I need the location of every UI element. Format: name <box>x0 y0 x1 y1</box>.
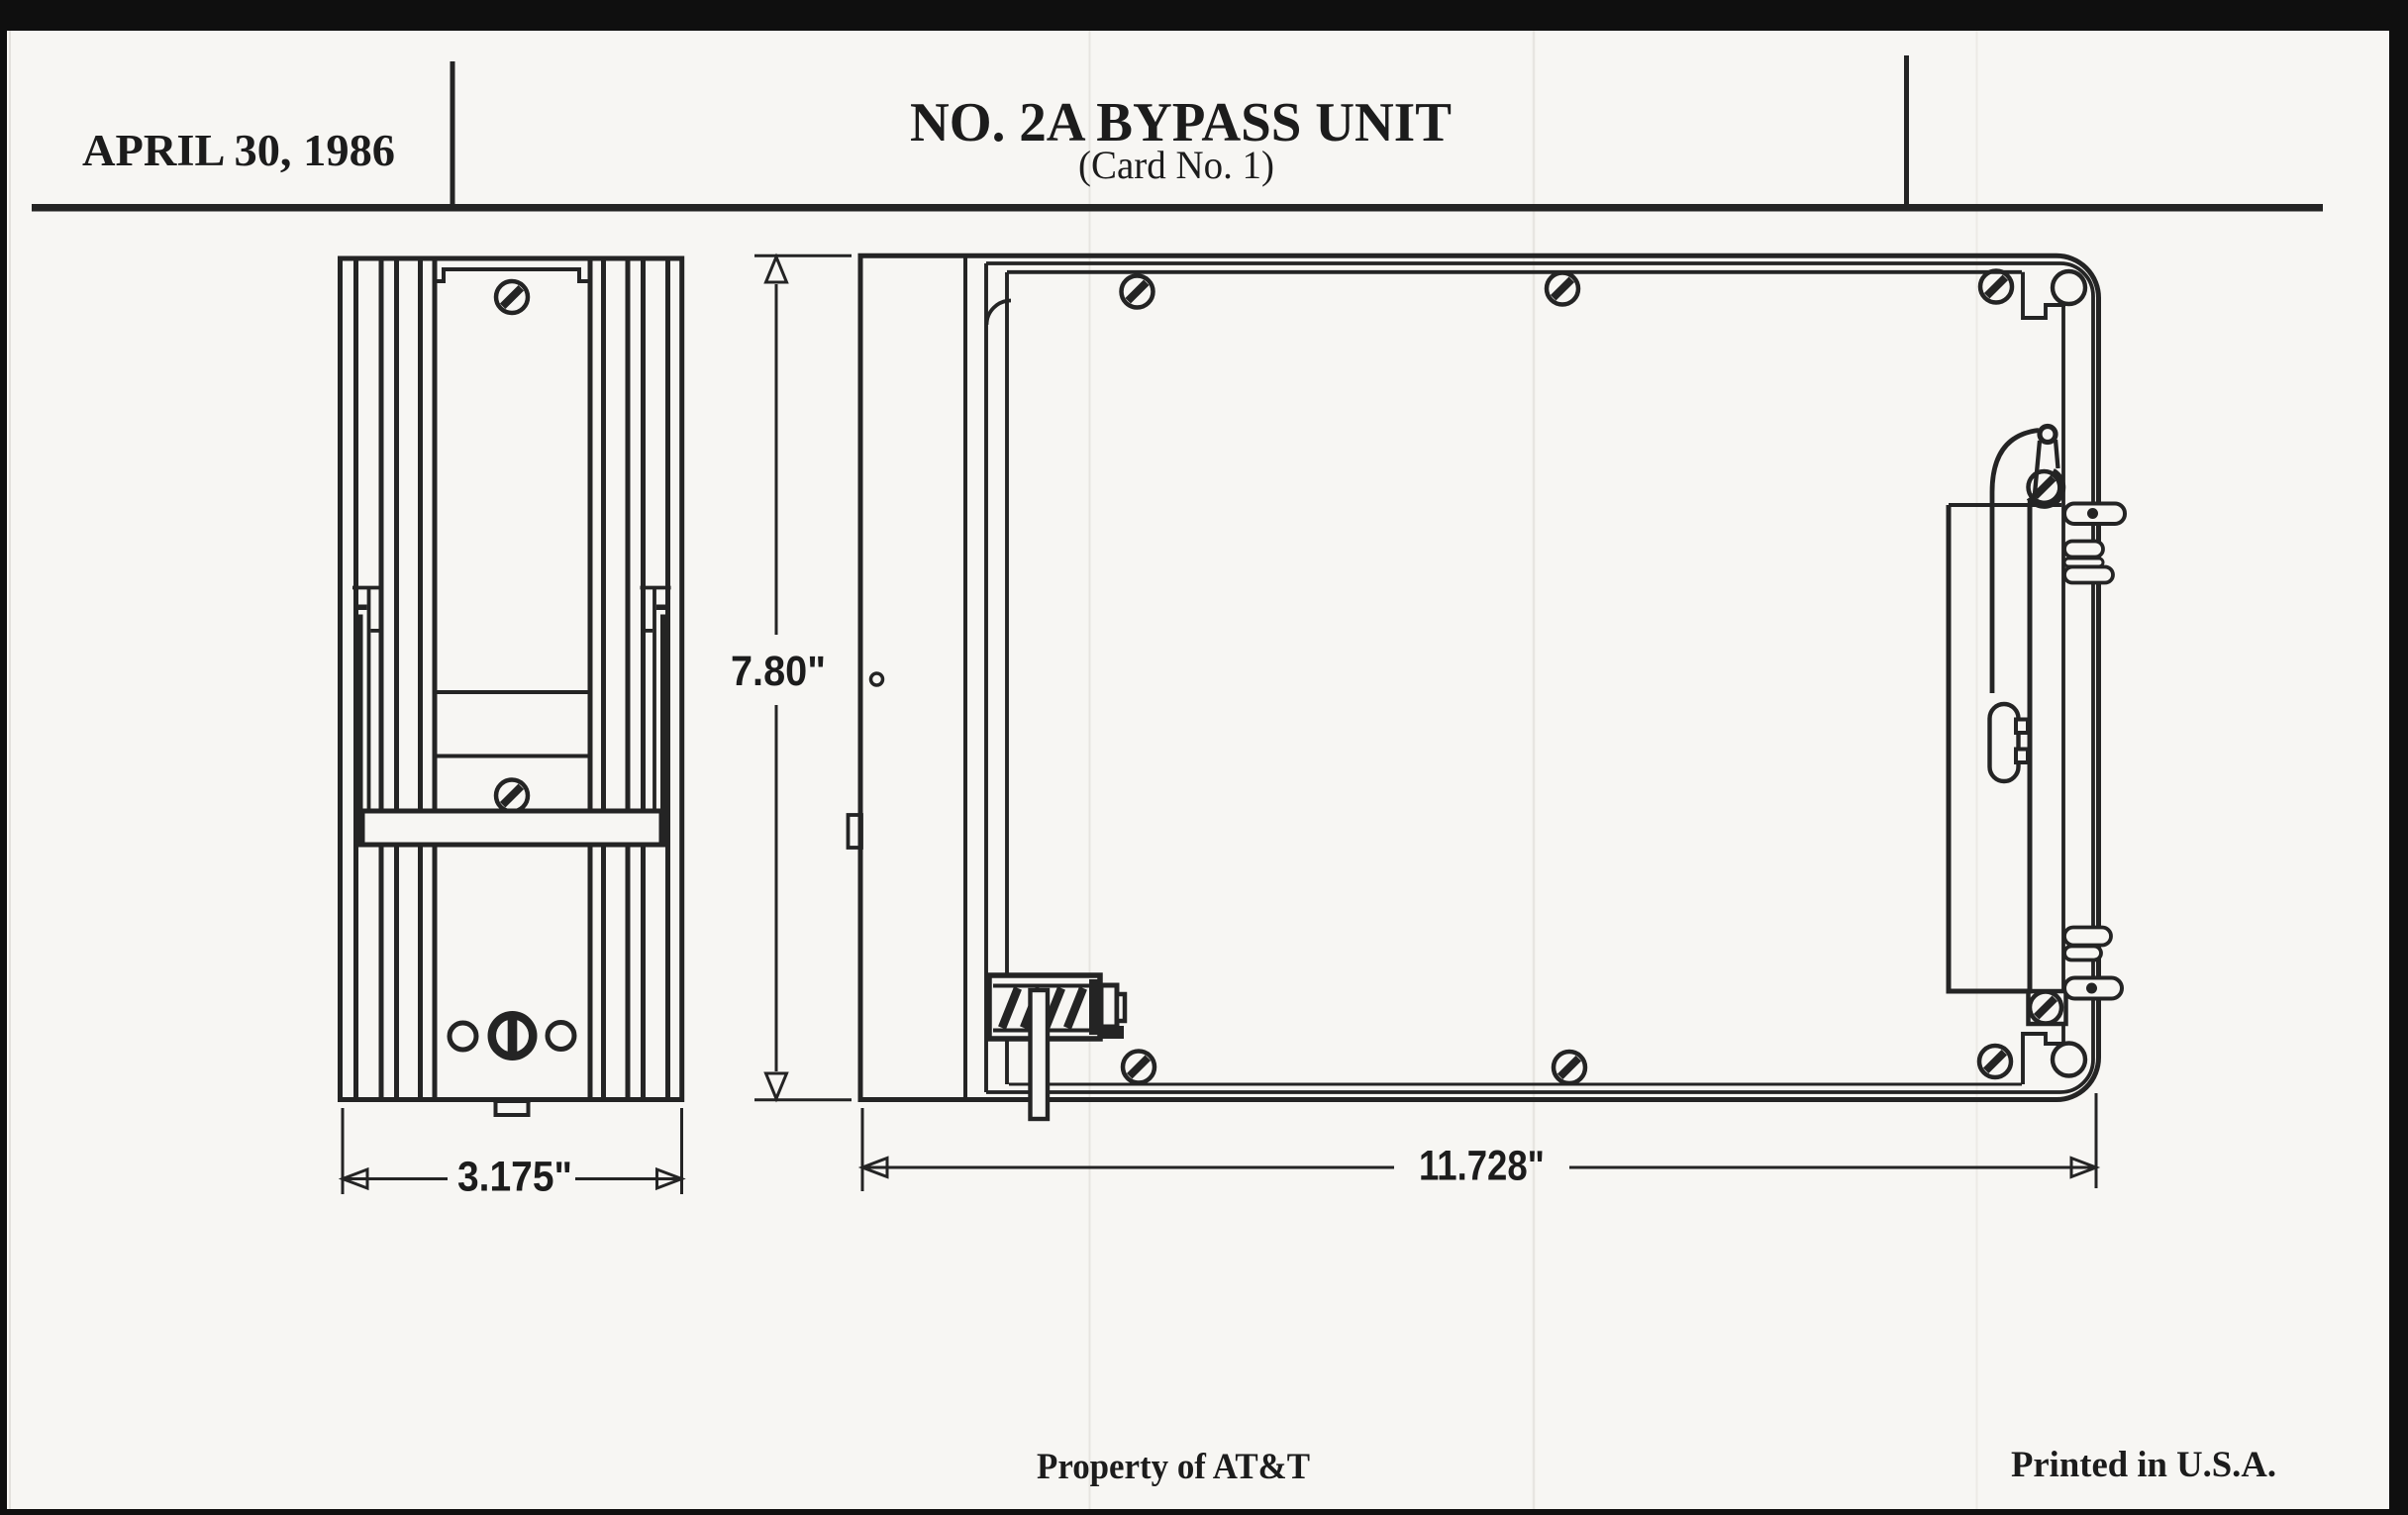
svg-text:3.175": 3.175" <box>457 1154 572 1201</box>
svg-text:(Card No. 1): (Card No. 1) <box>1078 143 1274 187</box>
svg-text:APRIL 30, 1986: APRIL 30, 1986 <box>82 126 395 175</box>
svg-text:11.728": 11.728" <box>1419 1143 1545 1190</box>
svg-text:Printed in U.S.A.: Printed in U.S.A. <box>2011 1445 2276 1485</box>
svg-text:7.80": 7.80" <box>731 648 826 695</box>
svg-text:Property of AT&T: Property of AT&T <box>1037 1447 1310 1487</box>
